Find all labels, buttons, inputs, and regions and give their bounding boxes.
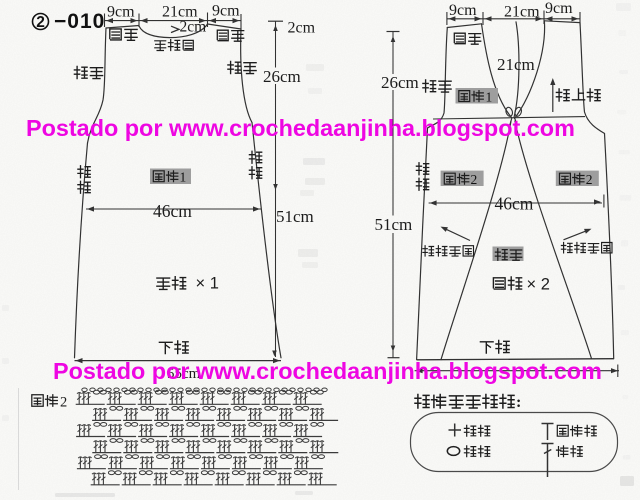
svg-text:46cm: 46cm (495, 194, 534, 214)
svg-text:51cm: 51cm (375, 215, 413, 234)
svg-text:51cm: 51cm (276, 207, 314, 226)
svg-text:26cm: 26cm (381, 73, 419, 92)
svg-text:2cm: 2cm (288, 20, 316, 37)
svg-text:2: 2 (60, 395, 67, 411)
svg-text:× 1: × 1 (196, 275, 219, 293)
svg-text:−010: −010 (54, 10, 105, 33)
svg-text:9cm: 9cm (449, 2, 477, 19)
svg-text:2: 2 (36, 14, 45, 31)
svg-text:1: 1 (180, 170, 187, 185)
svg-text:9cm: 9cm (107, 4, 135, 21)
svg-text:46cm: 46cm (153, 201, 192, 221)
svg-text:2: 2 (471, 172, 478, 187)
svg-text:21cm: 21cm (504, 4, 540, 21)
svg-text:26cm: 26cm (263, 67, 301, 86)
svg-text:× 2: × 2 (527, 276, 550, 294)
svg-text:2cm: 2cm (180, 19, 207, 36)
svg-text:1: 1 (486, 90, 493, 105)
svg-text::: : (516, 394, 521, 411)
svg-text:9cm: 9cm (545, 0, 573, 17)
svg-text:9cm: 9cm (212, 3, 240, 20)
svg-text:21cm: 21cm (497, 55, 535, 74)
svg-text:2: 2 (586, 172, 593, 187)
